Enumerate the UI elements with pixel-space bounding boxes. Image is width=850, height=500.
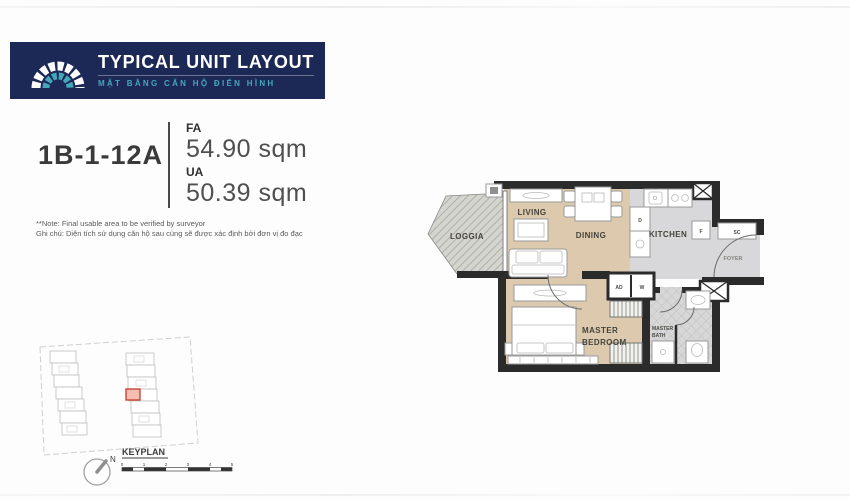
bed — [512, 307, 576, 355]
scale-bar: 0 1 2 3 4 5 — [121, 462, 234, 471]
scale-tick: 3 — [187, 462, 190, 467]
scale-tick: 5 — [231, 462, 234, 467]
room-label-master-bath-1: MASTER — [652, 326, 674, 332]
washer-label: W — [640, 285, 645, 291]
floor-plan: AD W D F SC — [424, 177, 764, 382]
fa-label: FA — [186, 122, 307, 135]
tv-console — [510, 189, 562, 202]
loggia-window — [503, 191, 507, 273]
window-seat — [508, 356, 598, 364]
keyplan: N KEYPLAN 0 1 2 3 4 5 — [28, 333, 238, 498]
bath-sink — [686, 291, 710, 309]
ad-label: AD — [615, 285, 623, 291]
header-text-block: TYPICAL UNIT LAYOUT MẶT BẰNG CĂN HỘ ĐIỂN… — [98, 53, 314, 88]
footnotes: **Note: Final usable area to be verified… — [36, 219, 303, 239]
top-scan-artifact — [0, 6, 850, 8]
nightstand-left — [505, 343, 512, 355]
keyplan-title: KEYPLAN — [122, 447, 165, 457]
room-label-loggia: LOGGIA — [450, 232, 484, 241]
shoe-cabinet-label: SC — [734, 230, 741, 236]
header-subtitle: MẶT BẰNG CĂN HỘ ĐIỂN HÌNH — [98, 75, 314, 88]
fa-value: 54.90 sqm — [186, 135, 307, 164]
north-indicator: N — [84, 455, 116, 485]
scale-tick: 4 — [209, 462, 212, 467]
room-label-foyer: FOYER — [724, 256, 743, 262]
room-label-kitchen: KITCHEN — [649, 230, 687, 239]
shower — [652, 341, 674, 363]
room-label-master-bedroom-1: MASTER — [582, 326, 618, 335]
toilet — [686, 341, 708, 363]
unit-info: 1B-1-12A FA 54.90 sqm UA 50.39 sqm — [38, 120, 307, 210]
shoe-cabinet: SC — [718, 223, 756, 239]
note-line-1: **Note: Final usable area to be verified… — [36, 219, 303, 229]
sofa — [509, 249, 567, 277]
service-shaft-top — [693, 183, 713, 199]
utility-closet: AD W — [608, 273, 654, 299]
scale-tick: 0 — [121, 462, 124, 467]
unit-code: 1B-1-12A — [38, 120, 166, 210]
room-label-master-bath-2: BATH — [652, 333, 666, 339]
ua-value: 50.39 sqm — [186, 179, 307, 208]
room-label-dining: DINING — [576, 231, 606, 240]
divider-line — [168, 122, 170, 208]
keyplan-building-left — [50, 351, 87, 435]
header-title: TYPICAL UNIT LAYOUT — [98, 53, 314, 71]
dishwasher-label: D — [638, 218, 642, 224]
highlighted-unit — [126, 389, 140, 400]
note-line-2: Ghi chú: Diện tích sử dụng căn hộ sau cù… — [36, 229, 303, 239]
scale-tick: 2 — [165, 462, 168, 467]
header-banner: TYPICAL UNIT LAYOUT MẶT BẰNG CĂN HỘ ĐIỂN… — [10, 42, 325, 99]
brand-arch-icon — [30, 52, 86, 90]
wardrobe-upper — [610, 301, 642, 317]
area-block: FA 54.90 sqm UA 50.39 sqm — [186, 120, 307, 210]
north-label: N — [110, 455, 116, 464]
ua-label: UA — [186, 166, 307, 179]
room-label-master-bedroom-2: BEDROOM — [582, 338, 627, 347]
keyplan-building-right — [126, 353, 161, 437]
page: TYPICAL UNIT LAYOUT MẶT BẰNG CĂN HỘ ĐIỂN… — [0, 0, 850, 500]
scale-tick: 1 — [143, 462, 146, 467]
fridge-label: F — [699, 229, 702, 235]
room-label-living: LIVING — [517, 208, 546, 217]
coffee-table — [514, 219, 548, 241]
keyplan-title-block: KEYPLAN — [122, 447, 168, 458]
